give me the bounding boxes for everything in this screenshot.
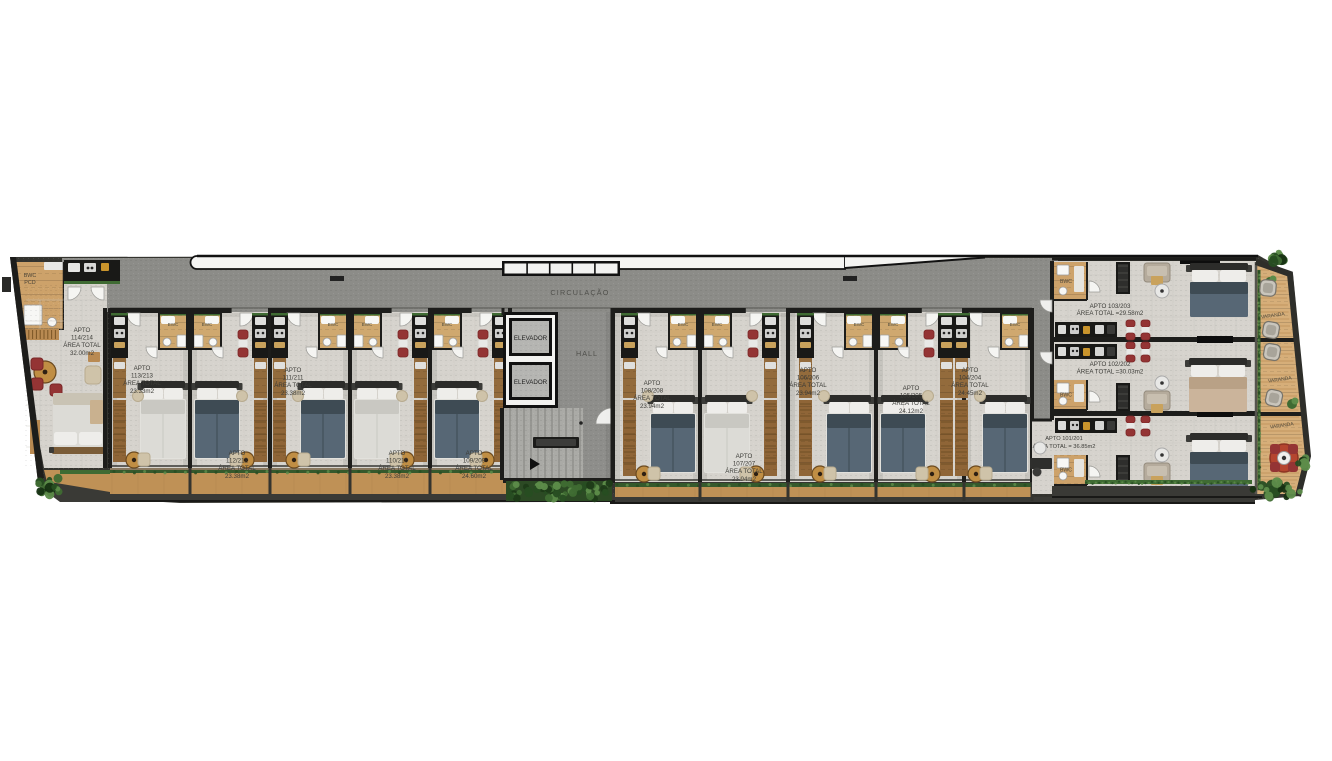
svg-text:105/205: 105/205: [900, 393, 923, 400]
svg-text:ÁREA TOTAL: ÁREA TOTAL: [123, 380, 161, 387]
svg-text:BWC: BWC: [1060, 393, 1072, 399]
svg-text:23.38m2: 23.38m2: [281, 390, 306, 397]
svg-text:BWC: BWC: [24, 273, 37, 279]
svg-text:APTO 101/201: APTO 101/201: [1045, 436, 1083, 442]
svg-text:111/211: 111/211: [283, 375, 305, 382]
svg-text:BWC: BWC: [854, 322, 865, 327]
svg-text:ÁREA TOTAL: ÁREA TOTAL: [218, 465, 256, 472]
svg-text:ÁREA TOTAL =29.58m2: ÁREA TOTAL =29.58m2: [1077, 310, 1144, 317]
svg-text:APTO: APTO: [134, 365, 151, 372]
svg-text:BWC: BWC: [1060, 279, 1072, 285]
svg-text:23.94m2: 23.94m2: [640, 403, 665, 410]
svg-text:BWC: BWC: [712, 322, 723, 327]
svg-text:BWC: BWC: [1010, 322, 1021, 327]
svg-text:BWC: BWC: [328, 322, 339, 327]
svg-text:ÁREA TOTAL: ÁREA TOTAL: [63, 342, 101, 349]
svg-text:BWC: BWC: [678, 322, 689, 327]
svg-text:24.12m2: 24.12m2: [899, 408, 924, 415]
svg-text:23.33m2: 23.33m2: [130, 388, 155, 395]
svg-text:CIRCULAÇÃO: CIRCULAÇÃO: [550, 288, 609, 297]
svg-text:APTO: APTO: [74, 327, 91, 334]
svg-text:24.45m2: 24.45m2: [958, 390, 983, 397]
svg-text:110/210: 110/210: [386, 458, 408, 465]
svg-text:APTO: APTO: [285, 367, 302, 374]
svg-text:ÁREA TOTAL: ÁREA TOTAL: [725, 468, 763, 475]
svg-text:109/209: 109/209: [463, 458, 486, 465]
svg-text:ELEVADOR: ELEVADOR: [514, 379, 548, 386]
svg-text:BWC: BWC: [202, 322, 213, 327]
svg-text:ELEVADOR: ELEVADOR: [514, 335, 548, 342]
svg-text:104/204: 104/204: [959, 375, 982, 382]
svg-text:107/207: 107/207: [733, 461, 756, 468]
svg-text:APTO: APTO: [962, 367, 979, 374]
svg-text:APTO: APTO: [466, 450, 483, 457]
svg-text:BWC: BWC: [362, 322, 373, 327]
svg-text:BWC: BWC: [442, 322, 453, 327]
svg-text:ÁREA TOTAL: ÁREA TOTAL: [892, 400, 930, 407]
svg-text:APTO 103/203: APTO 103/203: [1090, 303, 1131, 310]
svg-text:BWC: BWC: [1060, 468, 1072, 474]
svg-text:HALL: HALL: [576, 349, 598, 358]
svg-text:24.60m2: 24.60m2: [462, 473, 487, 480]
svg-text:ÁREA TOTAL: ÁREA TOTAL: [274, 382, 312, 389]
svg-text:APTO: APTO: [736, 453, 753, 460]
svg-text:ÁREA TOTAL: ÁREA TOTAL: [455, 465, 493, 472]
svg-text:APTO: APTO: [903, 385, 920, 392]
svg-text:113/213: 113/213: [131, 373, 153, 380]
svg-text:23.38m2: 23.38m2: [385, 473, 410, 480]
svg-text:BWC: BWC: [168, 322, 179, 327]
svg-text:23.94m2: 23.94m2: [796, 390, 821, 397]
svg-text:APTO: APTO: [800, 367, 817, 374]
svg-text:APTO: APTO: [389, 450, 406, 457]
svg-text:23.94m2: 23.94m2: [732, 476, 757, 483]
svg-text:23.38m2: 23.38m2: [225, 473, 250, 480]
svg-text:ÁREA TOTAL: ÁREA TOTAL: [789, 382, 827, 389]
svg-text:114/214: 114/214: [71, 335, 93, 342]
svg-text:ÁREA TOTAL: ÁREA TOTAL: [378, 465, 416, 472]
svg-text:ÁREA TOTAL: ÁREA TOTAL: [951, 382, 989, 389]
svg-text:32.00m2: 32.00m2: [70, 350, 95, 357]
svg-text:112/212: 112/212: [226, 458, 248, 465]
svg-text:APTO 102/202: APTO 102/202: [1090, 361, 1131, 368]
svg-text:APTO: APTO: [644, 380, 661, 387]
svg-text:108/208: 108/208: [641, 388, 664, 395]
svg-text:APTO: APTO: [229, 450, 246, 457]
svg-text:ÁREA TOTAL =30.03m2: ÁREA TOTAL =30.03m2: [1077, 369, 1144, 376]
svg-text:106/206: 106/206: [797, 375, 820, 382]
svg-text:BWC: BWC: [888, 322, 899, 327]
svg-text:ÁREA TOTAL: ÁREA TOTAL: [633, 395, 671, 402]
